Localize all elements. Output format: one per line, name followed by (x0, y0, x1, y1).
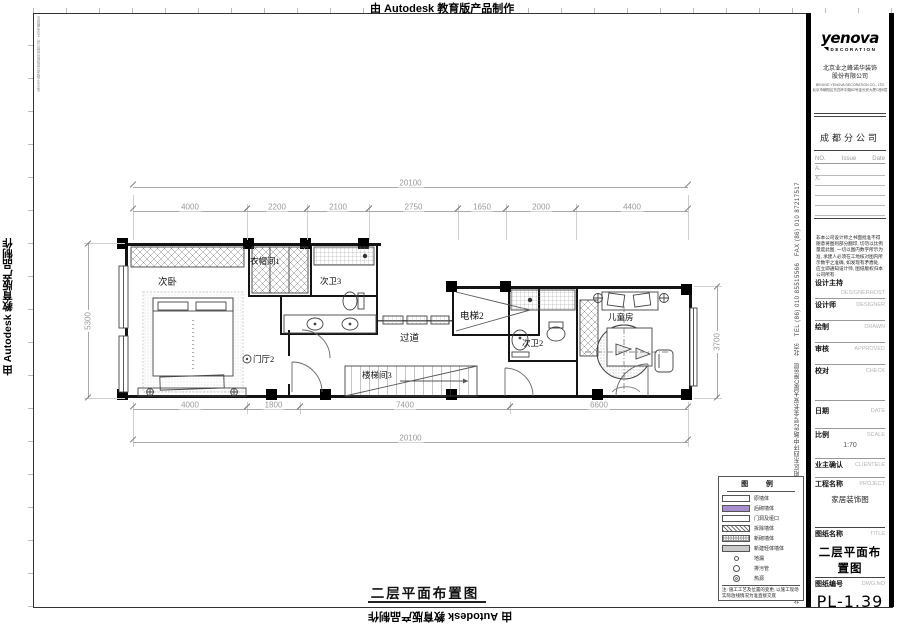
rev-row-label: X. (815, 176, 821, 182)
field-label: 比例 (815, 430, 829, 440)
dim-label: 3700 (713, 331, 722, 353)
room-label-bedroom2: 次卧 (158, 274, 177, 288)
room-label-corridor: 过道 (400, 330, 419, 344)
title-block-left-bar (806, 13, 811, 607)
drawing-number-value: PL-1.39 (815, 589, 885, 612)
legend-label: 拆除墙体 (754, 525, 774, 532)
dim-top-5: 2000 (506, 211, 576, 212)
legend-label: 后砌墙体 (754, 505, 774, 512)
project-name-value: 家居装饰图 (815, 489, 885, 506)
field-label-en: DESIGNERHOST (841, 290, 885, 296)
field-label-en: CLIENTELE (855, 462, 885, 468)
dim-top-6: 4400 (576, 211, 688, 212)
extension-line (247, 204, 248, 240)
legend-swatch-door-opening (722, 515, 750, 522)
field-label: 图纸编号 (815, 579, 843, 589)
dim-label: 4400 (621, 203, 643, 212)
field-label: 图纸名称 (815, 529, 843, 539)
dim-bottom-3: 6600 (510, 409, 688, 410)
room-label-foyer2: 门厅2 (253, 353, 274, 365)
dim-label: 7400 (394, 401, 416, 410)
drawing-sheet: 由 Autodesk 教育版产品制作 由 Autodesk 教育版产品制作 由 … (0, 0, 900, 630)
field-label: 工程名称 (815, 479, 843, 489)
dim-label: 2000 (530, 203, 552, 212)
legend-row: 热源 (719, 573, 803, 583)
field-scale: 比例 SCALE 1:70 (815, 430, 885, 459)
legend-label: 门洞及垭口 (754, 515, 779, 522)
revision-header: NO. Issue Date (815, 156, 885, 164)
revision-row: A. (815, 166, 885, 176)
field-label-en: PROJECT (859, 481, 885, 487)
field-label: 校对 (815, 366, 829, 376)
legend-label: 新砌墙体 (754, 535, 774, 542)
field-drawing-title: 图纸名称 TITLE 二层平面布置图 (815, 529, 885, 578)
dim-bottom-1: 1800 (247, 409, 300, 410)
field-label: 设计师 (815, 300, 836, 310)
divider (814, 113, 886, 114)
dim-bottom-0: 4000 (133, 409, 247, 410)
revision-row (815, 196, 885, 206)
extension-line (84, 398, 125, 399)
extension-line (307, 204, 308, 240)
revision-row (815, 206, 885, 216)
divider (814, 116, 886, 117)
extension-line (133, 195, 134, 240)
legend-swatch-new-wall (722, 535, 750, 542)
field-label: 日期 (815, 406, 829, 416)
dim-overall-bottom: 20100 (133, 442, 688, 443)
revision-row (815, 186, 885, 196)
field-design-host: 设计主持 DESIGNERHOST (815, 278, 885, 299)
field-drawn: 绘制 DRAWN (815, 322, 885, 343)
field-label-en: TITLE (870, 531, 885, 537)
legend-label: 热源 (754, 575, 764, 582)
field-label-en: SCALE (867, 432, 885, 438)
legend-label: 原墙体 (754, 495, 769, 502)
dim-label: 4000 (179, 401, 201, 410)
field-label: 业主确认 (815, 460, 843, 470)
branch-name: 成都分公司 (811, 131, 889, 144)
legend-box: 图 例 原墙体 后砌墙体 门洞及垭口 拆除墙体 新砌墙体 新建轻体墙体 地漏 排… (718, 476, 804, 601)
dim-top-1: 2200 (247, 211, 307, 212)
legend-row: 新建轻体墙体 (719, 543, 803, 553)
legend-label: 新建轻体墙体 (754, 545, 784, 552)
dim-label: 2750 (403, 203, 425, 212)
field-client-confirm: 业主确认 CLIENTELE (815, 460, 885, 478)
field-label-en: DWG.NO (862, 581, 885, 587)
company-name-line2: 股份有限公司 (811, 73, 889, 81)
legend-row: 后砌墙体 (719, 503, 803, 513)
room-label-bath3: 次卫3 (320, 275, 341, 287)
legend-swatch-demolished-wall (722, 525, 750, 532)
dim-top-4: 1650 (458, 211, 506, 212)
rev-row-label: A. (815, 166, 821, 172)
legend-row: 拆除墙体 (719, 523, 803, 533)
dim-label: 1800 (263, 401, 285, 410)
drawing-title-value: 二层平面布置图 (815, 539, 885, 577)
plan-title-underline (368, 601, 486, 603)
dim-label: 5300 (84, 310, 93, 332)
dim-label: 2200 (266, 203, 288, 212)
extension-line (688, 195, 689, 240)
dim-right: 3700 (717, 286, 718, 398)
legend-row: 原墙体 (719, 493, 803, 503)
field-label: 设计主持 (815, 278, 843, 288)
legend-swatch-later-wall (722, 505, 750, 512)
legend-swatch-original-wall (722, 495, 750, 502)
legend-row: 新砌墙体 (719, 533, 803, 543)
extension-line (688, 402, 689, 447)
legend-symbol-floor-drain (734, 556, 739, 561)
field-label-en: DRAWN (864, 324, 885, 330)
revision-row: X. (815, 176, 885, 186)
extension-line (506, 204, 507, 240)
company-name-en: BEIJING YENOVA DECORATION CO., LTD 北京市朝阳… (811, 83, 889, 93)
field-check: 校对 CHECK (815, 366, 885, 401)
divider (814, 150, 886, 151)
dim-overall-top: 20100 (133, 187, 688, 188)
legend-row: 排污管 (719, 563, 803, 573)
rev-date: Date (872, 156, 885, 162)
extension-line (694, 398, 722, 399)
field-approved: 审核 APPROVED (815, 344, 885, 365)
field-label: 绘制 (815, 322, 829, 332)
dim-left: 5300 (88, 243, 89, 398)
extension-line (369, 204, 370, 240)
room-label-cloakroom1: 衣帽间1 (250, 255, 280, 267)
room-label-elevator2: 电梯2 (460, 308, 484, 322)
room-label-kidsroom: 儿童房 (608, 311, 634, 323)
legend-label: 地漏 (754, 555, 764, 562)
legend-symbol-heat-source (733, 575, 740, 582)
title-block-right-bar (889, 13, 894, 607)
dim-label: 6600 (588, 401, 610, 410)
field-label: 审核 (815, 344, 829, 354)
legend-title: 图 例 (727, 479, 795, 492)
dim-label: 2100 (327, 203, 349, 212)
field-label-en: DATE (871, 408, 885, 414)
legend-label: 排污管 (754, 565, 769, 572)
scale-value: 1:70 (815, 440, 885, 450)
field-designer: 设计师 DESIGNER (815, 300, 885, 321)
dim-top-3: 2750 (369, 211, 458, 212)
extension-line (576, 204, 577, 240)
extension-line (84, 243, 125, 244)
logo-brand: yenova (811, 31, 889, 46)
plan-title: 二层平面布置图 (330, 582, 520, 602)
company-name-cn: 北京业之峰诺华装饰 股份有限公司 (811, 65, 889, 81)
room-label-stair3: 楼梯间3 (362, 369, 392, 381)
extension-line (458, 204, 459, 240)
legend-row: 门洞及垭口 (719, 513, 803, 523)
field-project-name: 工程名称 PROJECT 家居装饰图 (815, 479, 885, 528)
company-addr-line: 北京市朝阳区东四环中路82号金长安大厦C座8层 (811, 88, 889, 93)
legend-row: 地漏 (719, 553, 803, 563)
rev-no: NO. (815, 156, 826, 162)
rev-issue: Issue (842, 156, 856, 162)
company-logo: yenova DECORATION (811, 31, 889, 52)
field-label-en: APPROVED (854, 346, 885, 352)
field-date: 日期 DATE (815, 406, 885, 429)
field-drawing-number: 图纸编号 DWG.NO PL-1.39 (815, 579, 885, 606)
room-label-bath2: 次卫2 (522, 337, 543, 349)
legend-swatch-light-wall (722, 545, 750, 552)
dim-label: 4000 (179, 203, 201, 212)
field-label-en: CHECK (866, 368, 885, 374)
company-name-line1: 北京业之峰诺华装饰 (811, 65, 889, 73)
title-block: yenova DECORATION 北京业之峰诺华装饰 股份有限公司 BEIJI… (811, 13, 889, 607)
logo-subtitle: DECORATION (811, 47, 889, 52)
legend-note: 注: 施工工艺及位置的变更, 以施工现场实际放线情况为准直接交底 (722, 585, 800, 599)
dim-top-0: 4000 (133, 211, 247, 212)
divider (814, 218, 886, 219)
legend-symbol-sewage-pipe (733, 565, 740, 572)
dim-label: 1650 (471, 203, 493, 212)
dim-label: 20100 (397, 179, 423, 188)
disclaimer-text: 非本公司设计师之书面批准不得随意将图则部分翻印, 切勿以比例量度此图, 一切以图… (816, 235, 884, 278)
dim-top-2: 2100 (307, 211, 369, 212)
dim-bottom-2: 7400 (300, 409, 510, 410)
dim-label: 20100 (397, 434, 423, 443)
field-label-en: DESIGNER (856, 302, 885, 308)
